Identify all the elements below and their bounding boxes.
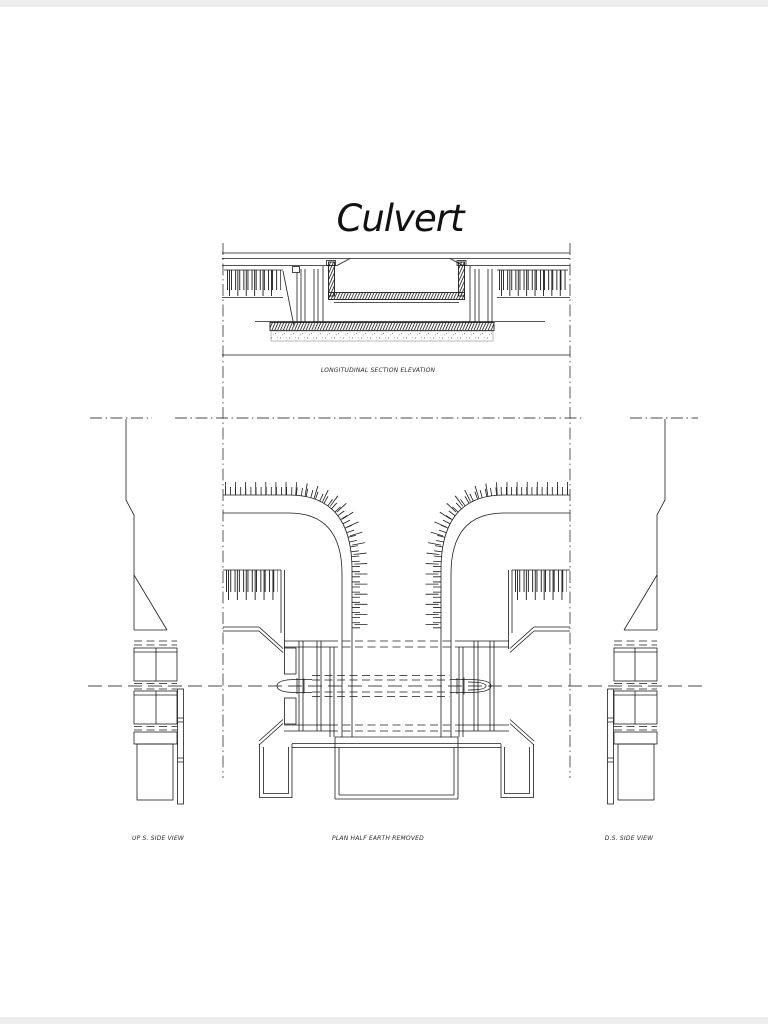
plan-view xyxy=(223,489,570,800)
culvert-drawing xyxy=(0,0,768,1024)
culvert-drawing-sheet: Culvert LONGITUDINAL SECTION ELEVATION U… xyxy=(0,0,768,1024)
downstream-side-view-label: D.S. SIDE VIEW xyxy=(605,835,653,842)
plan-view-label: PLAN HALF EARTH REMOVED xyxy=(332,835,424,842)
drawing-title: Culvert xyxy=(337,197,464,240)
longitudinal-section-view xyxy=(222,253,570,355)
upstream-side-view-label: UP S. SIDE VIEW xyxy=(132,835,184,842)
longitudinal-section-label: LONGITUDINAL SECTION ELEVATION xyxy=(321,367,435,374)
downstream-side-view xyxy=(608,419,666,804)
upstream-side-view xyxy=(126,419,184,804)
